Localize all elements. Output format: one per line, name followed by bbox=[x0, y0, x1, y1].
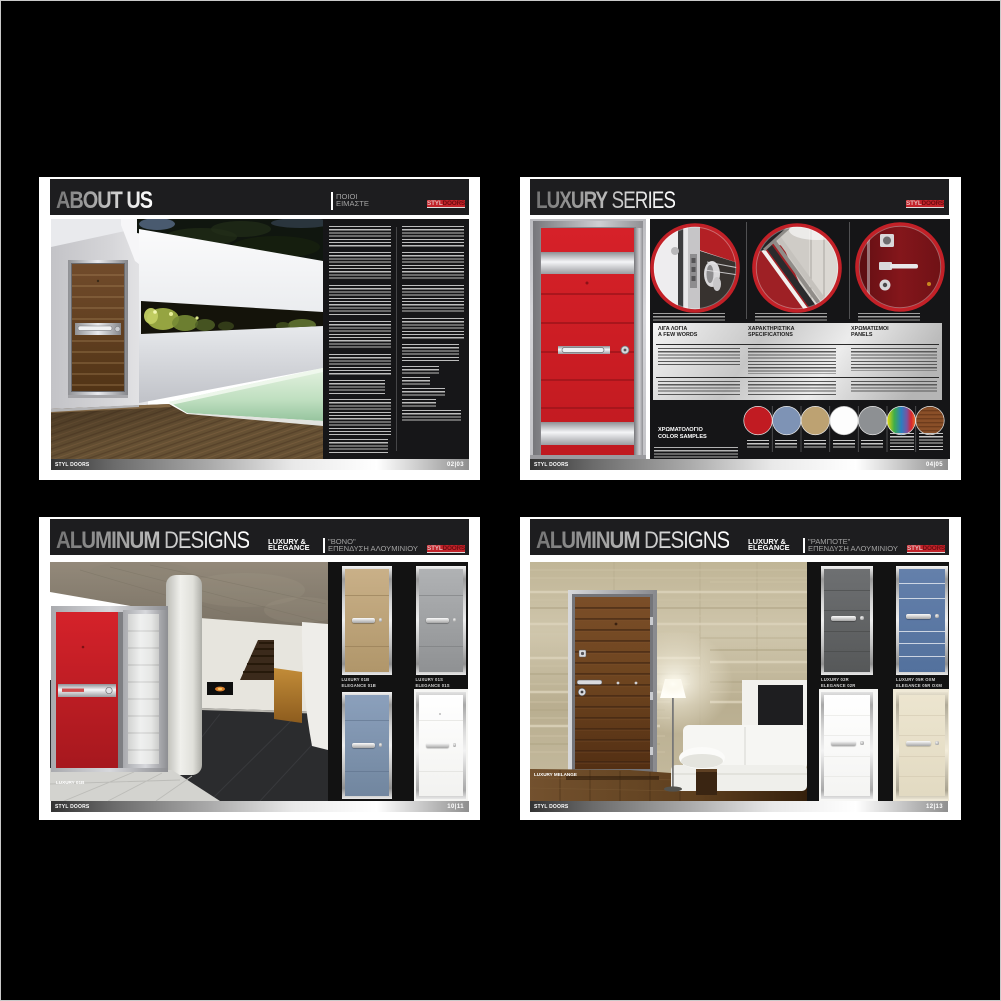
svg-text:LUXURY MELANGE: LUXURY MELANGE bbox=[534, 772, 577, 777]
svg-text:LUXURY 01B: LUXURY 01B bbox=[56, 780, 85, 785]
